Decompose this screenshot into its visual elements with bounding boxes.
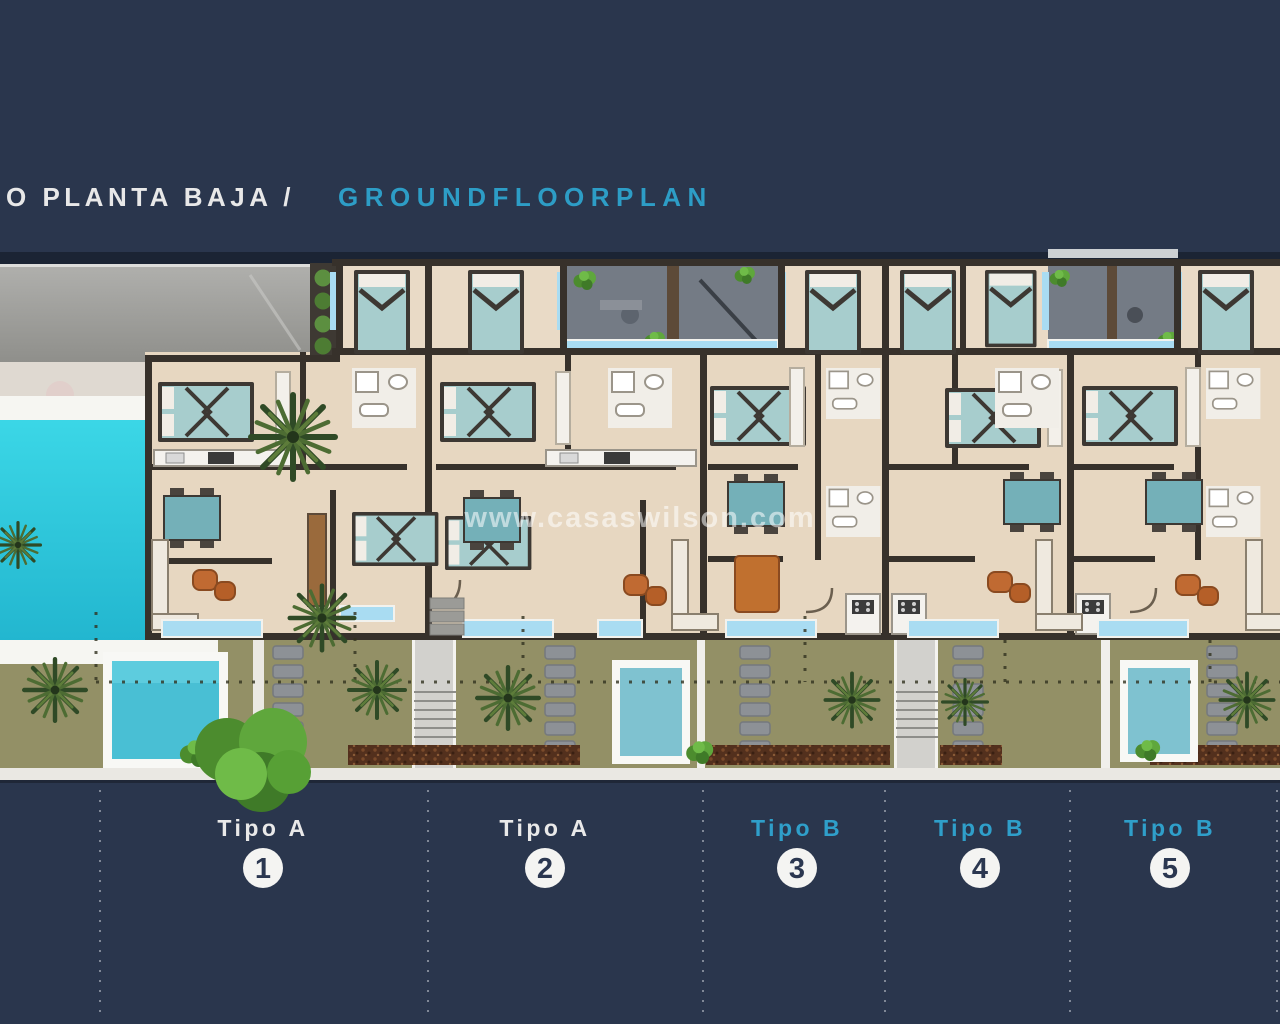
bed (900, 270, 956, 354)
unit-number: 5 (1162, 853, 1178, 885)
unit-number: 3 (789, 853, 805, 885)
unit-type-label: Tipo B (934, 815, 1026, 841)
unit-type-label: Tipo A (499, 815, 590, 841)
pergola-roof (1048, 249, 1178, 258)
unit-type-label: Tipo B (751, 815, 843, 841)
unit-number: 4 (972, 853, 988, 885)
apartment-building (145, 259, 1280, 640)
bed (1082, 386, 1178, 446)
title-spanish: O PLANTA BAJA / (6, 182, 295, 212)
unit-number: 1 (255, 853, 271, 885)
floor-plan-image: O PLANTA BAJA / GROUNDFLOORPLAN (0, 0, 1280, 1024)
entry-steps (430, 598, 464, 635)
unit-number: 2 (537, 853, 553, 885)
bed (158, 382, 254, 442)
orange-sofa (735, 556, 779, 612)
plunge-pool-2 (612, 660, 690, 764)
unit-type-label: Tipo B (1124, 815, 1216, 841)
watermark: www.casaswilson.com (463, 502, 815, 534)
unit-type-label: Tipo A (217, 815, 308, 841)
title-english: GROUNDFLOORPLAN (338, 182, 713, 212)
garden-wall (1101, 640, 1110, 768)
bed (354, 270, 410, 354)
bed (985, 270, 1037, 347)
sidewalk (0, 768, 1280, 780)
bed (468, 270, 524, 354)
bed (440, 382, 536, 442)
bed (1198, 270, 1254, 354)
bed (805, 270, 861, 354)
road (0, 264, 312, 362)
sidewalk-edge (0, 780, 1280, 783)
page-title: O PLANTA BAJA / GROUNDFLOORPLAN (6, 182, 713, 212)
bed (352, 512, 438, 566)
stair-walkway-2 (894, 640, 938, 768)
